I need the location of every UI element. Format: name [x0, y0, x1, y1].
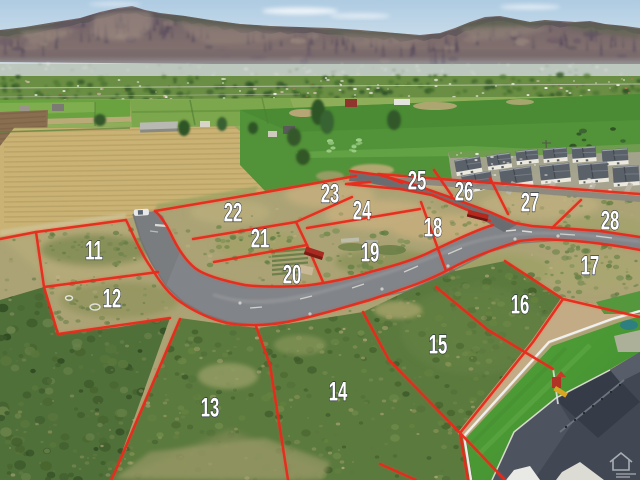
svg-text:13: 13	[201, 393, 220, 423]
svg-text:28: 28	[601, 206, 620, 236]
svg-text:25: 25	[408, 166, 427, 196]
svg-text:15: 15	[429, 330, 448, 360]
svg-text:20: 20	[283, 260, 302, 290]
svg-text:19: 19	[361, 238, 380, 268]
svg-text:24: 24	[353, 196, 372, 226]
svg-text:11: 11	[85, 236, 103, 266]
svg-text:27: 27	[521, 188, 540, 218]
svg-text:12: 12	[103, 284, 122, 314]
svg-text:17: 17	[581, 251, 600, 281]
svg-text:22: 22	[224, 198, 243, 228]
svg-text:18: 18	[424, 213, 443, 243]
svg-text:14: 14	[329, 377, 348, 407]
svg-text:21: 21	[251, 224, 270, 254]
svg-text:26: 26	[455, 177, 474, 207]
svg-text:16: 16	[511, 290, 530, 320]
svg-text:23: 23	[321, 179, 340, 209]
